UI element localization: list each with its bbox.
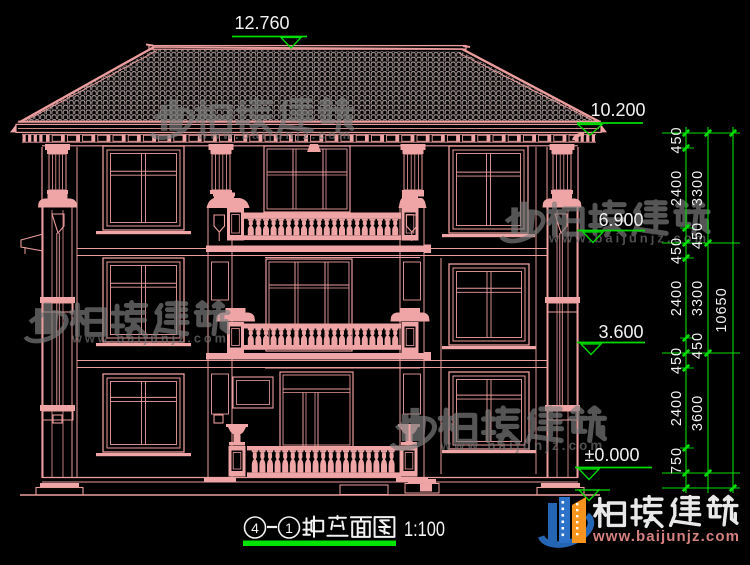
svg-text:450: 450	[669, 237, 685, 264]
svg-text:10.200: 10.200	[590, 100, 645, 120]
svg-text:3.600: 3.600	[598, 322, 643, 342]
svg-text:±0.000: ±0.000	[585, 445, 640, 465]
svg-text:1: 1	[285, 520, 293, 536]
svg-text:2400: 2400	[669, 170, 685, 206]
svg-text:www.baijunjz.com: www.baijunjz.com	[196, 128, 352, 142]
svg-text:2400: 2400	[669, 280, 685, 316]
svg-text:www.baijunjz.com: www.baijunjz.com	[71, 331, 229, 346]
svg-text:450: 450	[690, 222, 706, 249]
svg-text:750: 750	[669, 447, 685, 474]
svg-text:3300: 3300	[690, 280, 706, 316]
svg-text:www.baijunjz.com: www.baijunjz.com	[440, 438, 606, 453]
svg-text:3300: 3300	[690, 170, 706, 206]
svg-text:10650: 10650	[714, 287, 730, 332]
svg-text:450: 450	[669, 347, 685, 374]
svg-text:3600: 3600	[690, 395, 706, 431]
svg-text:12.760: 12.760	[234, 13, 289, 33]
svg-text:1:100: 1:100	[404, 518, 445, 541]
svg-text:450: 450	[690, 332, 706, 359]
svg-text:450: 450	[669, 126, 685, 153]
svg-text:2400: 2400	[669, 390, 685, 426]
svg-text:6.900: 6.900	[598, 210, 643, 230]
svg-text:4: 4	[251, 520, 259, 536]
svg-text:www.baijunjz.com: www.baijunjz.com	[592, 528, 740, 545]
